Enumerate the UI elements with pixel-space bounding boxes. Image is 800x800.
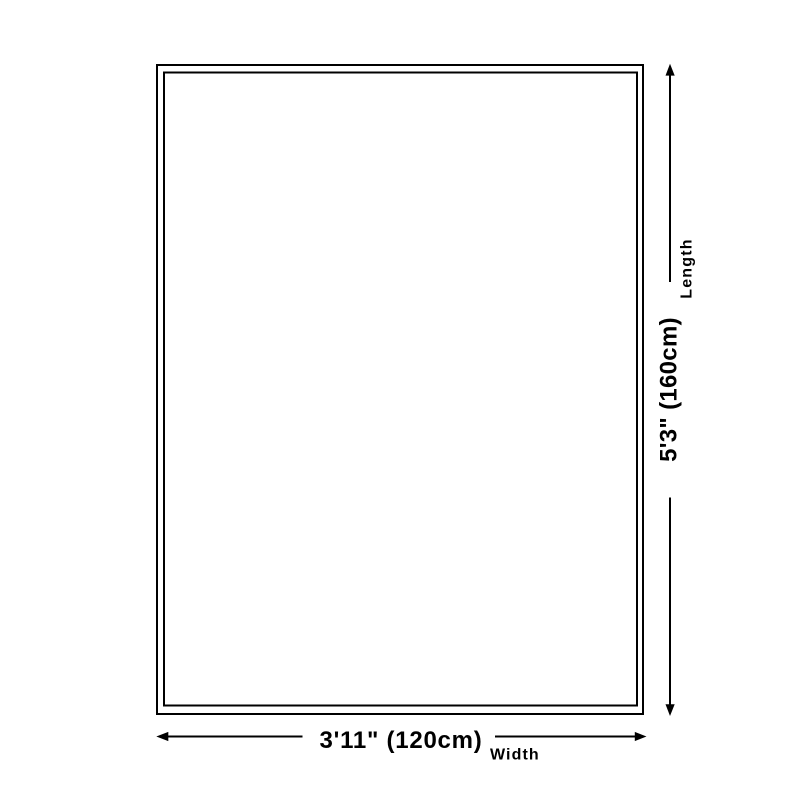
svg-text:5'3" (160cm): 5'3" (160cm) bbox=[656, 317, 683, 462]
svg-text:3'11" (120cm): 3'11" (120cm) bbox=[320, 727, 483, 754]
svg-text:Width: Width bbox=[490, 747, 540, 764]
svg-text:Length: Length bbox=[679, 238, 696, 299]
